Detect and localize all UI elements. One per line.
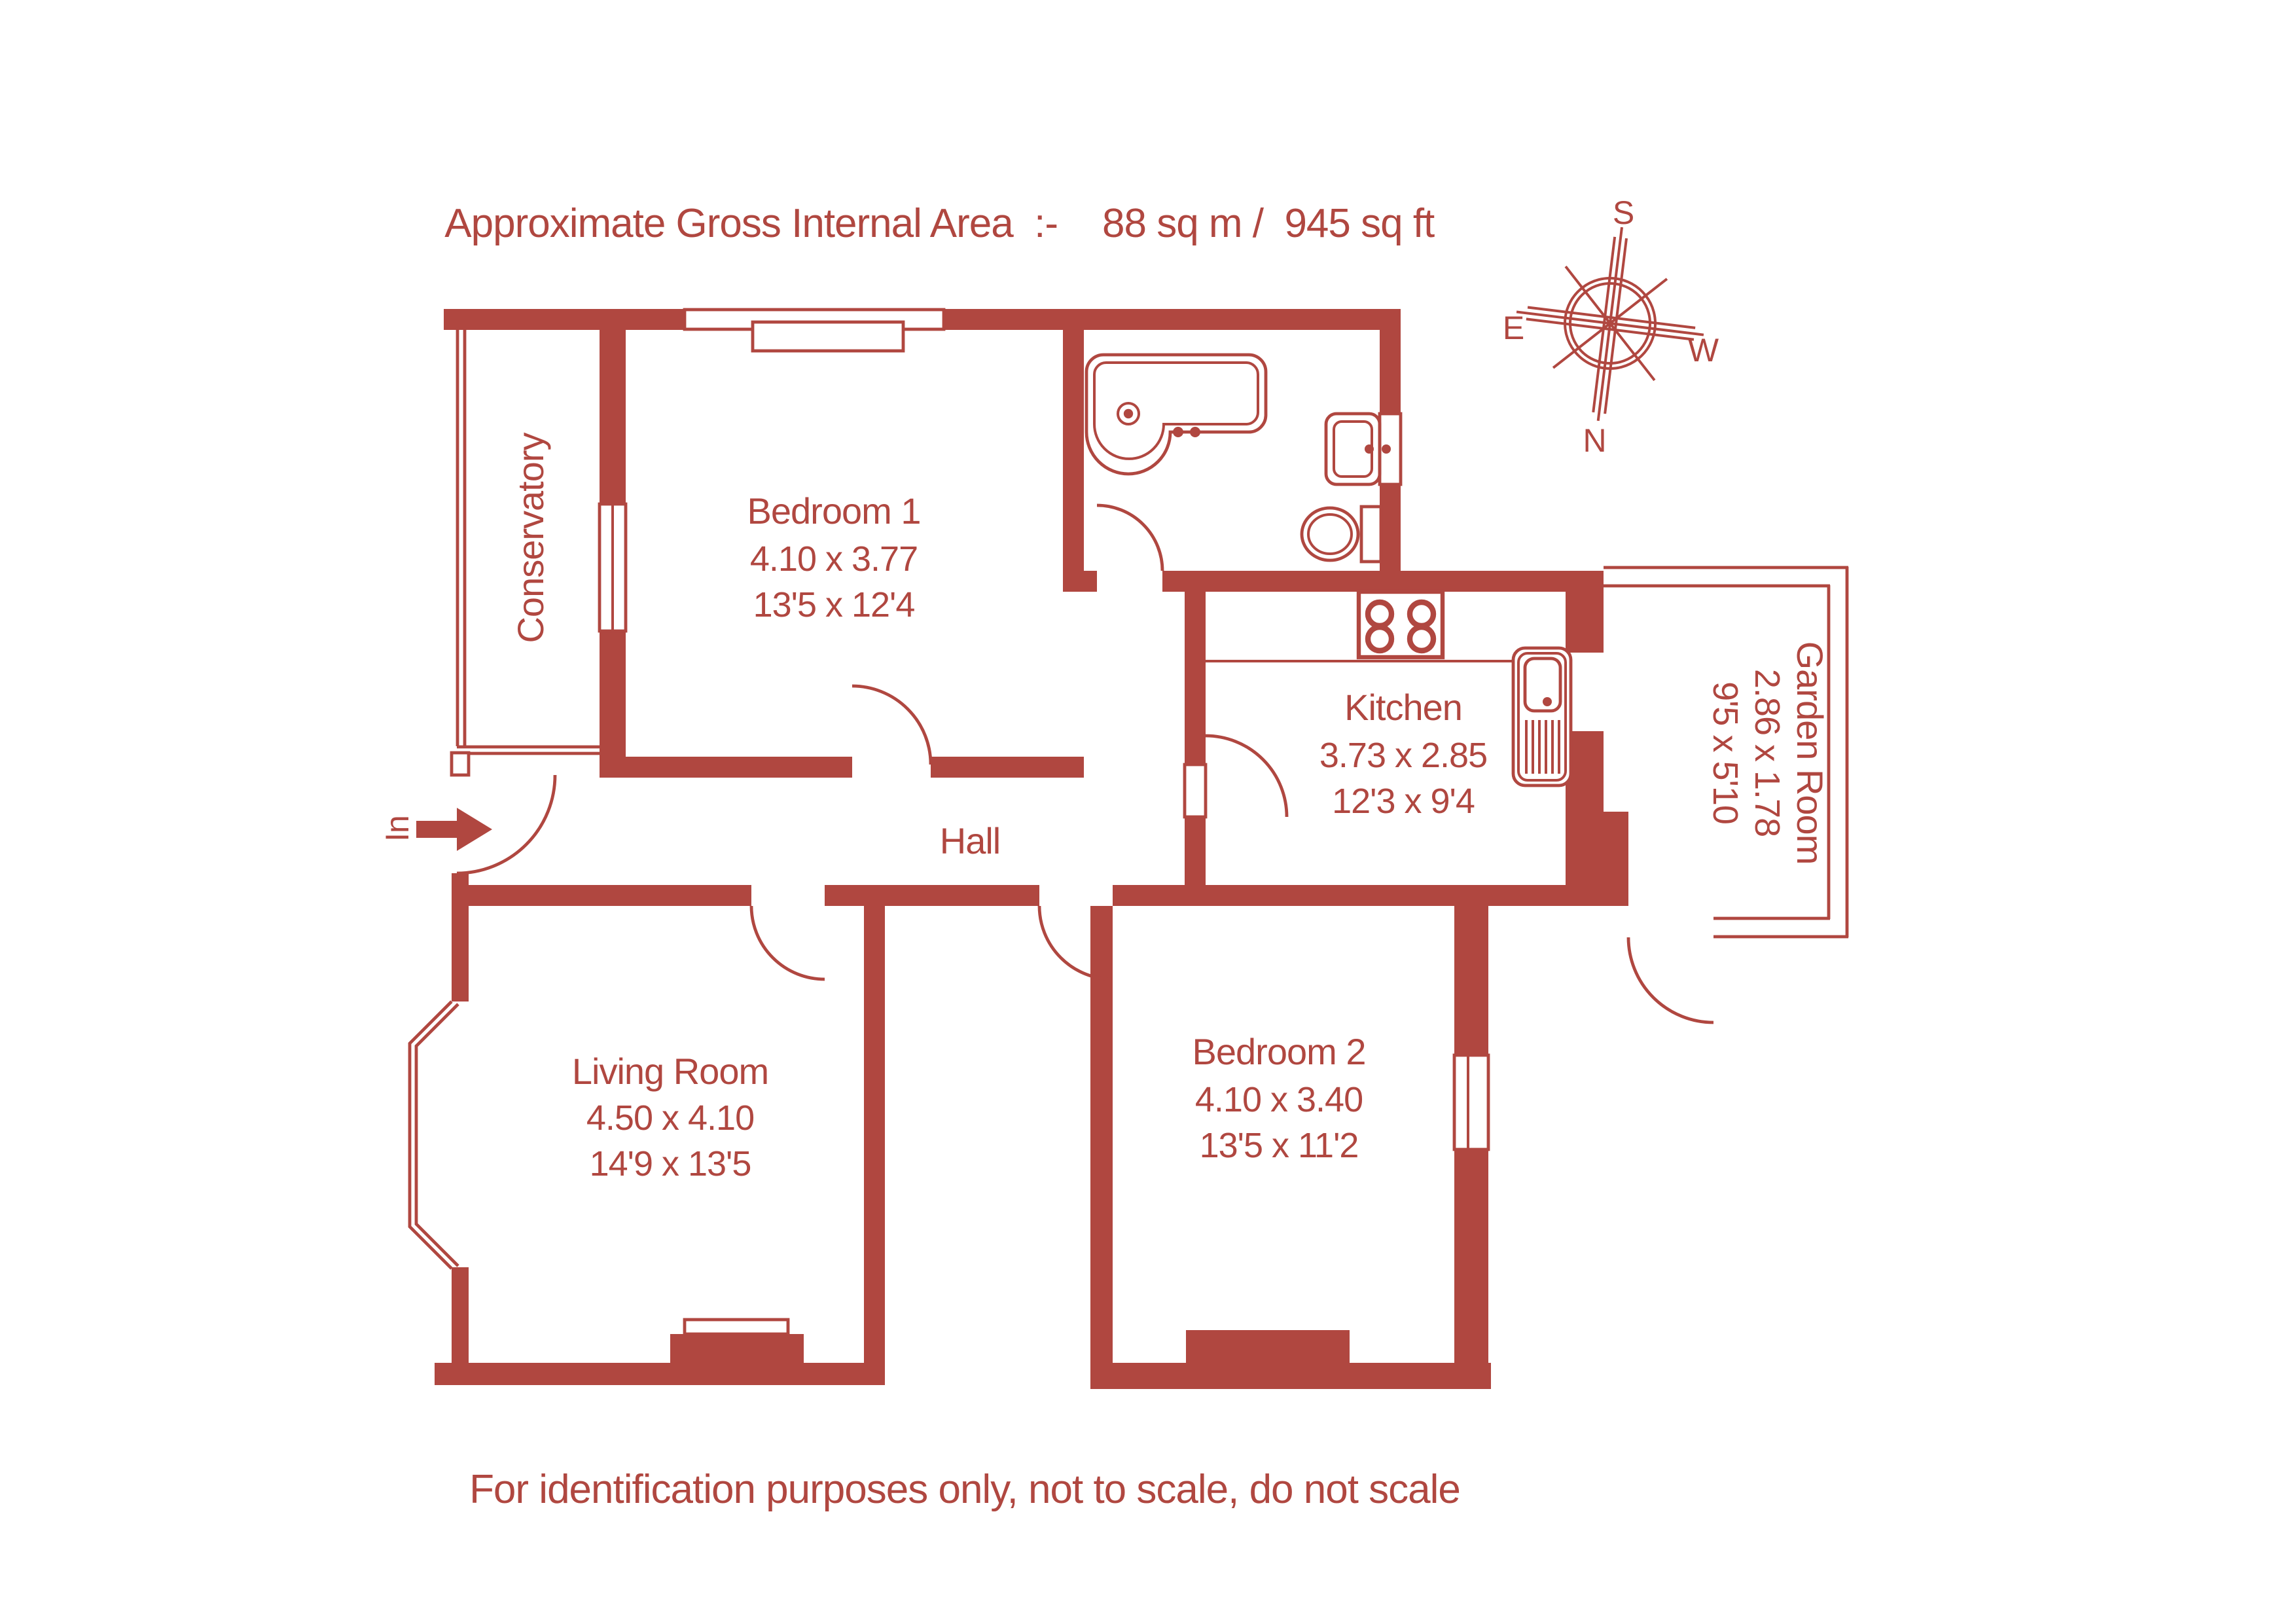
walls [435,309,1628,1389]
toilet-icon [1302,507,1381,562]
bedroom2-name: Bedroom 2 [1193,1031,1366,1072]
gardenroom-door-swing [1628,937,1713,1022]
wall-kitchen-left [1185,592,1206,765]
room-label-bedroom2: Bedroom 2 4.10 x 3.40 13'5 x 11'2 [1193,1031,1366,1165]
title-value: 88 sq m / 945 sq ft [1102,201,1435,246]
bedroom1-metric: 4.10 x 3.77 [750,539,918,579]
kitchen-imperial: 12'3 x 9'4 [1332,782,1475,821]
wall-bedroom2-left [1090,906,1113,1363]
wall-bathroom-left [1063,330,1084,592]
wall-bedroom2-right-upper [1454,885,1488,1055]
livingroom-imperial: 14'9 x 13'5 [590,1144,751,1183]
wall-entrance-stub [452,873,469,906]
floorplan: Approximate Gross Internal Area :- 88 sq… [0,0,2296,1624]
wall-bathroom-bottom-left [1063,571,1097,592]
footer-disclaimer: For identification purposes only, not to… [469,1467,1460,1512]
bathroom-door-swing [1097,505,1162,571]
kitchen-door-jamb [1185,765,1206,817]
wall-bedroom1-left-upper [600,330,626,504]
compass-south-label: S [1613,194,1634,231]
livingroom-door-swing [751,906,825,979]
entrance-in-label: In [379,816,416,842]
wall-hall-bottom-middle [825,885,1039,906]
bedroom2-metric: 4.10 x 3.40 [1195,1080,1363,1119]
entrance-sidelight-window [452,753,469,775]
wall-livingroom-left-upper [452,906,469,1001]
bedroom2-window [1454,1055,1488,1149]
title-label: Approximate Gross Internal Area :- [444,201,1058,246]
room-label-kitchen: Kitchen 3.73 x 2.85 12'3 x 9'4 [1319,687,1487,821]
wall-livingroom-left-lower [452,1267,469,1363]
hob-icon [1359,592,1443,657]
wall-livingroom-bottom [435,1363,885,1385]
bedroom1-top-window-frame [753,322,903,351]
kitchen-sink-icon [1513,648,1571,785]
compass-rose-icon: S N E W [1503,194,1719,459]
basin-icon [1326,414,1391,484]
bedroom2-chimney-breast [1186,1330,1350,1363]
kitchen-name: Kitchen [1344,687,1462,728]
wall-hall-bottom-left [452,885,751,906]
bedroom1-conservatory-window [600,504,626,631]
entrance-arrow-icon [416,808,492,851]
wall-bathroom-right-upper [1380,330,1401,414]
room-label-hall: Hall [940,820,1000,861]
bedroom2-imperial: 13'5 x 11'2 [1200,1126,1359,1165]
kitchen-door-swing [1206,736,1287,817]
wall-bedroom2-bottom [1090,1363,1491,1389]
livingroom-chimney-breast [670,1334,804,1363]
compass-west-label: W [1688,332,1719,369]
kitchen-metric: 3.73 x 2.85 [1319,736,1487,775]
room-label-conservatory: Conservatory [510,432,551,643]
room-label-gardenroom: Garden Room 2.86 x 1.78 9'5 x 5'10 [1706,641,1831,865]
room-label-bedroom1: Bedroom 1 4.10 x 3.77 13'5 x 12'4 [747,490,921,624]
bath-icon [1086,355,1266,474]
wall-bedroom1-bottom-left [600,757,852,778]
wall-hall-bottom-right [1113,885,1628,906]
entrance: In [379,808,492,851]
compass-north-label: N [1583,422,1605,459]
bedroom1-door-swing [852,686,931,765]
livingroom-metric: 4.50 x 4.10 [586,1098,754,1138]
fireplace-hearth [685,1320,788,1334]
bedroom1-name: Bedroom 1 [747,490,921,532]
gardenroom-imperial: 9'5 x 5'10 [1706,681,1745,824]
bedroom1-imperial: 13'5 x 12'4 [753,585,915,624]
wall-kitchen-right-upper [1566,592,1604,651]
wall-bathroom-kitchen [1162,571,1604,592]
room-label-livingroom: Living Room 4.50 x 4.10 14'9 x 13'5 [572,1051,768,1183]
livingroom-name: Living Room [572,1051,768,1092]
livingroom-bay-window [410,1001,458,1269]
compass-east-label: E [1503,310,1524,346]
wall-bedroom1-left-lower [600,631,626,778]
wall-bedroom1-bottom-right [931,757,1084,778]
wall-kitchen-left-stub [1185,817,1206,885]
gardenroom-metric: 2.86 x 1.78 [1748,669,1787,837]
wall-bathroom-right-lower [1380,484,1401,571]
wall-bedroom2-right-lower [1454,1149,1488,1389]
gardenroom-name: Garden Room [1789,641,1831,865]
wall-livingroom-right [864,906,885,1363]
